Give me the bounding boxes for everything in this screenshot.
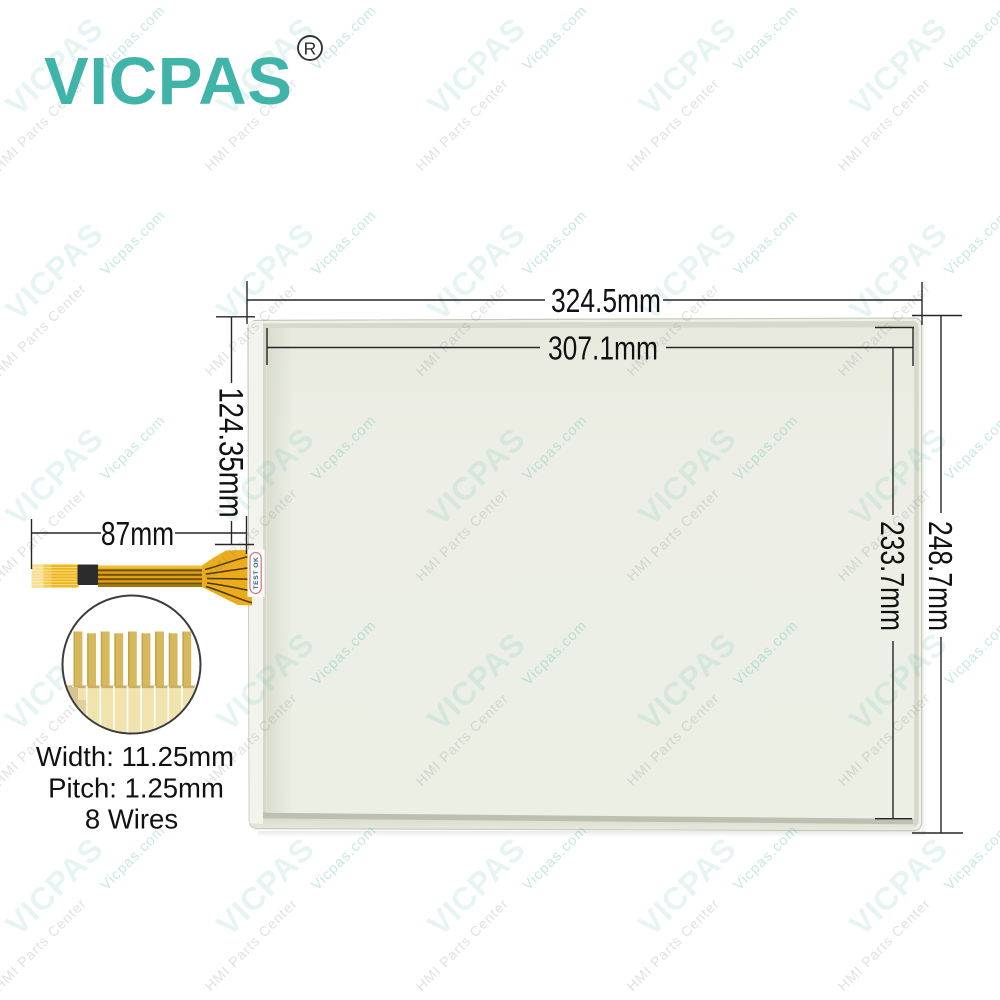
svg-text:Vicpas.com: Vicpas.com (309, 208, 380, 279)
svg-text:Vicpas.com: Vicpas.com (309, 3, 380, 74)
svg-text:Pitch: 1.25mm: Pitch: 1.25mm (48, 772, 224, 803)
svg-text:Vicpas.com: Vicpas.com (98, 413, 169, 484)
svg-text:124.35mm: 124.35mm (212, 387, 251, 517)
svg-text:VICPAS: VICPAS (44, 44, 293, 119)
svg-text:8 Wires: 8 Wires (85, 804, 178, 835)
svg-text:233.7mm: 233.7mm (873, 521, 909, 631)
svg-text:87mm: 87mm (101, 516, 174, 552)
svg-text:Vicpas.com: Vicpas.com (731, 208, 802, 279)
svg-text:TEST OK: TEST OK (253, 557, 260, 590)
svg-text:R: R (304, 39, 317, 59)
svg-text:324.5mm: 324.5mm (551, 283, 661, 319)
svg-text:307.1mm: 307.1mm (548, 331, 658, 367)
svg-text:Vicpas.com: Vicpas.com (98, 208, 169, 279)
svg-text:Vicpas.com: Vicpas.com (520, 3, 591, 74)
svg-text:Width: 11.25mm: Width: 11.25mm (36, 741, 234, 772)
svg-text:Vicpas.com: Vicpas.com (520, 208, 591, 279)
svg-text:Vicpas.com: Vicpas.com (731, 3, 802, 74)
svg-text:248.7mm: 248.7mm (921, 521, 957, 631)
